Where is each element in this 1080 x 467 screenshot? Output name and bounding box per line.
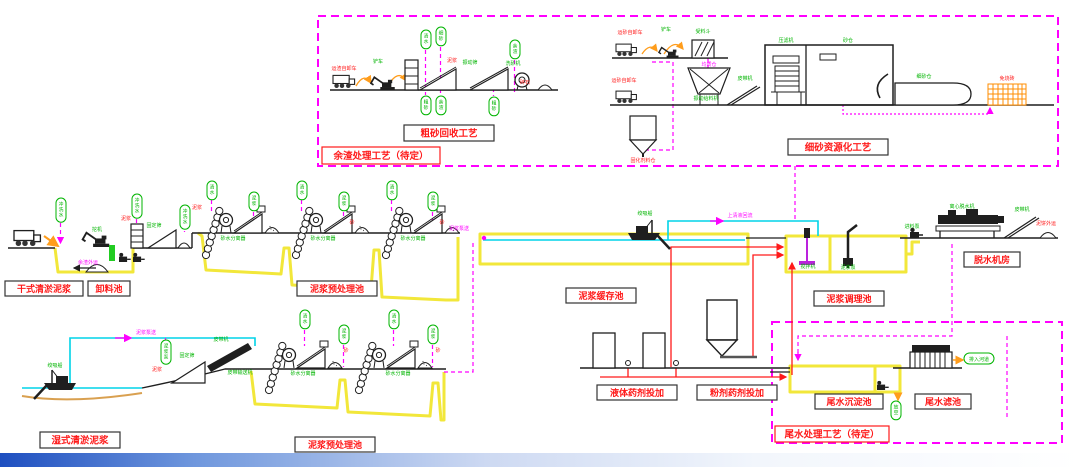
label-fine-sand-store: 细砂仓 [916, 73, 931, 80]
conditioning-pool-label: 泥浆调理池 [814, 291, 884, 306]
liquid-chemical-tank-1 [593, 333, 615, 368]
svg-text:脱水机房: 脱水机房 [974, 254, 1010, 265]
filter-unit-cover [912, 345, 950, 352]
label-dump-truck-2: 运砂自卸车 [617, 29, 642, 36]
unloading-pool-label: 卸料池 [88, 281, 130, 296]
label-loader-1: 铲车 [373, 58, 383, 65]
label-filter-press: 压滤机 [778, 37, 793, 44]
fixed-screen [172, 362, 205, 383]
solidifier-silo-body [630, 116, 656, 140]
svg-text:泥浆泵: 泥浆泵 [164, 343, 169, 361]
pretreatment-pool-2 [251, 371, 444, 420]
svg-text:泥浆: 泥浆 [431, 195, 436, 207]
powder-silo-body [707, 300, 737, 340]
svg-text:粗砂: 粗砂 [492, 100, 497, 112]
svg-text:放空: 放空 [894, 404, 899, 416]
svg-text:卸料池: 卸料池 [95, 283, 122, 294]
label-belt-conveyor-1: 皮带机 [737, 75, 752, 82]
capsule-coarse-sand-1: 粗砂 [421, 96, 431, 115]
label-solidifier-silo: 固化剂料仓 [630, 157, 655, 164]
dosing-valve-2 [674, 361, 679, 366]
svg-text:泥浆预处理池: 泥浆预处理池 [308, 439, 362, 450]
svg-text:泥浆: 泥浆 [431, 328, 436, 340]
powder-chemical-dosing-label: 粉剂药剂投加 [697, 385, 777, 400]
label-separator-3: 砂水分离器 [400, 235, 425, 242]
fine-sand-utilization-label: 细砂资源化工艺 [788, 139, 888, 155]
homogenizing-hopper [688, 68, 730, 94]
label-vibrating-feeder: 振动给料机 [693, 95, 718, 102]
liquid-chemical-tank-2 [643, 333, 665, 368]
label-sand-bin: 砂仓 [843, 37, 853, 44]
capsule-clear-water-1: 清水 [207, 181, 217, 200]
svg-text:冲洗水: 冲洗水 [135, 197, 140, 215]
label-gravel: 碎石 [520, 79, 530, 86]
label-dredger-2: 绞吸船 [47, 362, 62, 369]
coarse-sand-recovery-label: 粗砂回收工艺 [404, 125, 494, 141]
tailwater-sedimentation-pool-label: 尾水沉淀池 [815, 394, 883, 409]
label-dredger-1: 绞吸船 [637, 210, 652, 217]
label-homogenizing-bin: 均质仓 [701, 61, 716, 68]
tailwater-filter-pool-label: 尾水滤池 [915, 394, 971, 409]
label-residue-out: 余渣外运 [78, 259, 98, 266]
tailwater-filter-unit [910, 352, 952, 368]
dewatering-group [900, 209, 1058, 238]
label-loader-2: 铲车 [661, 26, 671, 33]
residue-process-pending-label: 余渣处理工艺（待定） [322, 147, 440, 164]
pretreatment-pool-2-label: 泥浆预处理池 [295, 437, 375, 452]
tailwater-process-dashed-box [772, 322, 1062, 443]
capsule-clear-water-2: 清水 [297, 181, 307, 200]
svg-text:清水: 清水 [392, 313, 397, 325]
capsule-residue-2: 余渣 [510, 40, 520, 59]
chemical-pipes [600, 247, 792, 377]
svg-text:粉剂药剂投加: 粉剂药剂投加 [710, 387, 764, 398]
label-dump-truck-1: 运渣自卸车 [331, 65, 356, 72]
label-centrifuge: 离心脱水机 [949, 203, 974, 210]
capsule-clear-water-5: 清水 [389, 310, 399, 329]
capsule-fine-sand: 细砂 [436, 27, 446, 46]
label-slurry-pump-2: 泥浆泵 [840, 264, 855, 271]
dosing-valve-1 [626, 361, 631, 366]
label-mixer: 搅拌机 [800, 263, 815, 270]
inclined-conveyor [727, 86, 757, 105]
label-sand-2: 砂 [439, 219, 444, 226]
label-mud-cake-out: 泥饼外运 [1036, 220, 1056, 227]
inlet-screen [148, 230, 176, 248]
fine-sand-tank [895, 83, 971, 105]
label-belt-conveyor-2: 皮带机 [1014, 206, 1029, 213]
label-separator-1: 砂水分离器 [220, 235, 245, 242]
centrifuge-stand [936, 226, 1000, 231]
capsule-flush-water-2: 冲洗水 [132, 194, 142, 218]
svg-text:排入河道: 排入河道 [969, 356, 989, 363]
diagram-canvas: 运渣自卸车铲车泥浆振动筛洗砂机碎石运砂自卸车铲车受料斗运砂自卸车均质仓振动给料机… [0, 0, 1080, 467]
centrifuge-body [938, 215, 998, 224]
label-slurry-pumping-2: 泥浆泵送 [136, 329, 156, 336]
svg-text:余渣: 余渣 [439, 99, 444, 111]
svg-text:尾水处理工艺（待定）: 尾水处理工艺（待定） [783, 428, 879, 440]
sand-pile [538, 85, 552, 90]
label-excavator: 挖机 [92, 226, 102, 233]
label-separator-5: 砂水分离器 [385, 370, 410, 377]
pools [55, 233, 920, 420]
dry-dredging-mud-label: 干式清淤泥浆 [5, 281, 83, 296]
mud-cake-pile [1040, 233, 1056, 239]
svg-text:尾水滤池: 尾水滤池 [924, 396, 961, 407]
label-sand-washer: 洗砂机 [505, 60, 520, 67]
label-sand-4: 砂 [435, 347, 440, 354]
brick-stack [988, 84, 1026, 105]
label-fixed-screen-2: 固定筛 [179, 352, 194, 359]
capsule-residue-1: 余渣 [436, 96, 446, 115]
label-sand-1: 砂 [349, 219, 354, 226]
svg-text:清水: 清水 [303, 313, 308, 325]
pretreatment-pool-1-label: 泥浆预处理池 [297, 281, 377, 296]
capsule-clear-water-3: 清水 [387, 181, 397, 200]
bottom-gradient-bar [0, 453, 1080, 467]
svg-text:冲洗水: 冲洗水 [183, 208, 188, 226]
sand-chute [877, 74, 888, 98]
svg-text:冲洗水: 冲洗水 [59, 201, 64, 219]
filter-press-head [773, 56, 799, 63]
capsule-slurry-4: 泥浆 [339, 325, 349, 344]
label-dump-truck-3: 运砂自卸车 [611, 77, 636, 84]
grid-gate [109, 245, 115, 261]
cake-conveyor [1004, 217, 1036, 238]
svg-text:泥浆调理池: 泥浆调理池 [826, 293, 871, 304]
label-belt-conveyor-4: 皮带输送机 [227, 369, 252, 376]
capsule-slurry-3: 泥浆 [428, 192, 438, 211]
svg-text:余渣: 余渣 [513, 43, 518, 55]
transfer-pump-dot [482, 236, 486, 240]
svg-text:泥浆预处理池: 泥浆预处理池 [310, 283, 364, 294]
svg-text:尾水沉淀池: 尾水沉淀池 [825, 396, 871, 407]
svg-text:粗砂回收工艺: 粗砂回收工艺 [420, 127, 478, 139]
label-slurry-a: 泥浆 [447, 57, 457, 64]
capsule-flush-water-1: 冲洗水 [56, 198, 66, 222]
powder-silo-cone [707, 340, 737, 356]
capsule-clear-water-4: 清水 [300, 310, 310, 329]
svg-text:泥浆: 泥浆 [342, 328, 347, 340]
liquid-chemical-dosing-label: 液体药剂投加 [597, 385, 677, 400]
tailwater-process-pending-label: 尾水处理工艺（待定） [775, 426, 889, 442]
label-fixed-screen-1: 固定筛 [146, 222, 161, 229]
svg-text:湿式清淤泥浆: 湿式清淤泥浆 [51, 434, 109, 446]
svg-text:液体药剂投加: 液体药剂投加 [610, 387, 664, 398]
label-separator-2: 砂水分离器 [310, 235, 335, 242]
svg-text:粗砂: 粗砂 [424, 99, 429, 111]
label-slurry-b: 泥浆 [121, 215, 131, 222]
label-receiving-hopper: 受料斗 [695, 28, 710, 35]
capsule-drain: 放空 [891, 401, 901, 420]
svg-text:细砂资源化工艺: 细砂资源化工艺 [805, 141, 872, 153]
dewatering-room-label: 脱水机房 [964, 252, 1020, 267]
svg-text:泥浆缓存池: 泥浆缓存池 [578, 290, 623, 301]
svg-text:细砂: 细砂 [439, 30, 444, 42]
label-slurry-d: 泥浆 [152, 366, 162, 373]
chemical-dosing-group [580, 300, 790, 368]
feeder-tower [405, 60, 418, 90]
capsule-discharge-to-river: 排入河道 [964, 353, 994, 364]
label-separator-4: 砂水分离器 [290, 370, 315, 377]
label-feed-pump: 进料泵 [904, 223, 919, 230]
capsule-slurry-pump: 泥浆泵 [161, 340, 171, 364]
capsule-coarse-sand-2: 粗砂 [489, 97, 499, 116]
capsule-wash-water-1: 清水 [421, 30, 431, 49]
label-supernatant-return: 上清液回流 [727, 212, 752, 219]
svg-text:清水: 清水 [210, 184, 215, 196]
hatched-conveyor [207, 343, 252, 372]
process-flow-diagram: 运渣自卸车铲车泥浆振动筛洗砂机碎石运砂自卸车铲车受料斗运砂自卸车均质仓振动给料机… [0, 0, 1080, 467]
solidifier-silo-cone [630, 140, 656, 154]
svg-text:泥浆: 泥浆 [342, 195, 347, 207]
dewater-feed-channel [906, 242, 920, 254]
wet-dredging-mud-label: 湿式清淤泥浆 [40, 432, 120, 448]
hoist [820, 54, 836, 60]
label-vibrating-screen: 振动筛 [462, 59, 477, 66]
capsule-slurry-2: 泥浆 [339, 192, 349, 211]
buffer-pool-label: 泥浆缓存池 [566, 288, 636, 303]
filter-press-plates [775, 66, 799, 92]
svg-text:清水: 清水 [390, 184, 395, 196]
buffer-pool [480, 234, 748, 264]
capsule-slurry-5: 泥浆 [428, 325, 438, 344]
label-belt-conveyor-3: 皮带机 [213, 336, 228, 343]
label-slurry-c: 泥浆 [192, 204, 202, 211]
svg-text:清水: 清水 [300, 184, 305, 196]
label-brick-yard: 免烧砖 [999, 75, 1014, 82]
label-slurry-pumping-1: 泥浆泵送 [449, 225, 469, 232]
capsule-slurry-1: 泥浆 [249, 192, 259, 211]
svg-text:泥浆: 泥浆 [252, 195, 257, 207]
inclined-screen-2 [470, 69, 508, 90]
svg-text:干式清淤泥浆: 干式清淤泥浆 [17, 283, 72, 294]
label-sand-3: 砂 [343, 347, 348, 354]
mixer-motor [804, 228, 810, 238]
svg-text:清水: 清水 [424, 33, 429, 45]
svg-text:余渣处理工艺（待定）: 余渣处理工艺（待定） [332, 150, 428, 162]
capsule-flush-water-3: 冲洗水 [180, 205, 190, 229]
